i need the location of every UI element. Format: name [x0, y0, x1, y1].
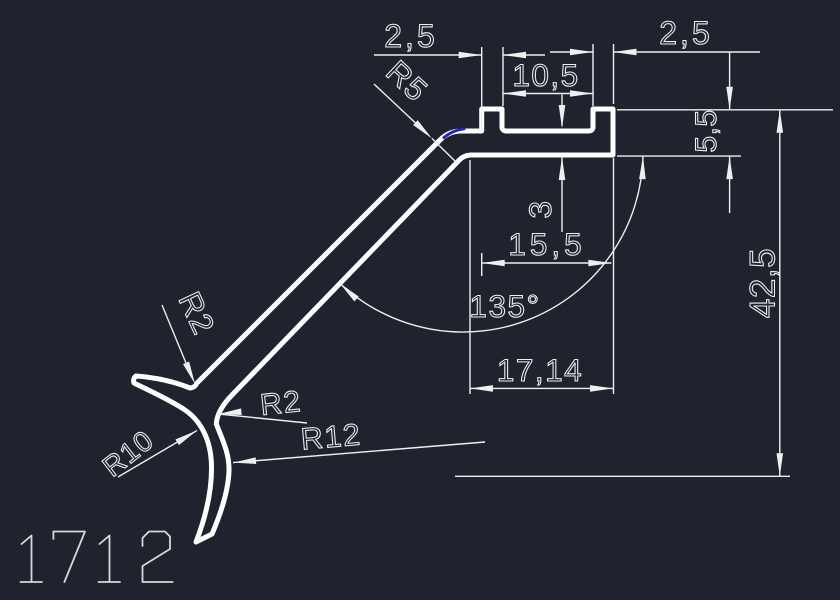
svg-text:3: 3 [522, 199, 558, 218]
svg-text:2,5: 2,5 [659, 15, 712, 51]
svg-text:10,5: 10,5 [512, 57, 579, 93]
svg-text:2,5: 2,5 [384, 18, 437, 54]
svg-text:17,14: 17,14 [497, 352, 583, 388]
svg-text:135°: 135° [469, 288, 540, 324]
svg-text:R12: R12 [300, 417, 363, 456]
svg-text:R2: R2 [259, 385, 304, 422]
svg-text:15,5: 15,5 [508, 226, 585, 262]
svg-text:5,5: 5,5 [690, 109, 723, 152]
svg-text:42,5: 42,5 [744, 248, 783, 318]
